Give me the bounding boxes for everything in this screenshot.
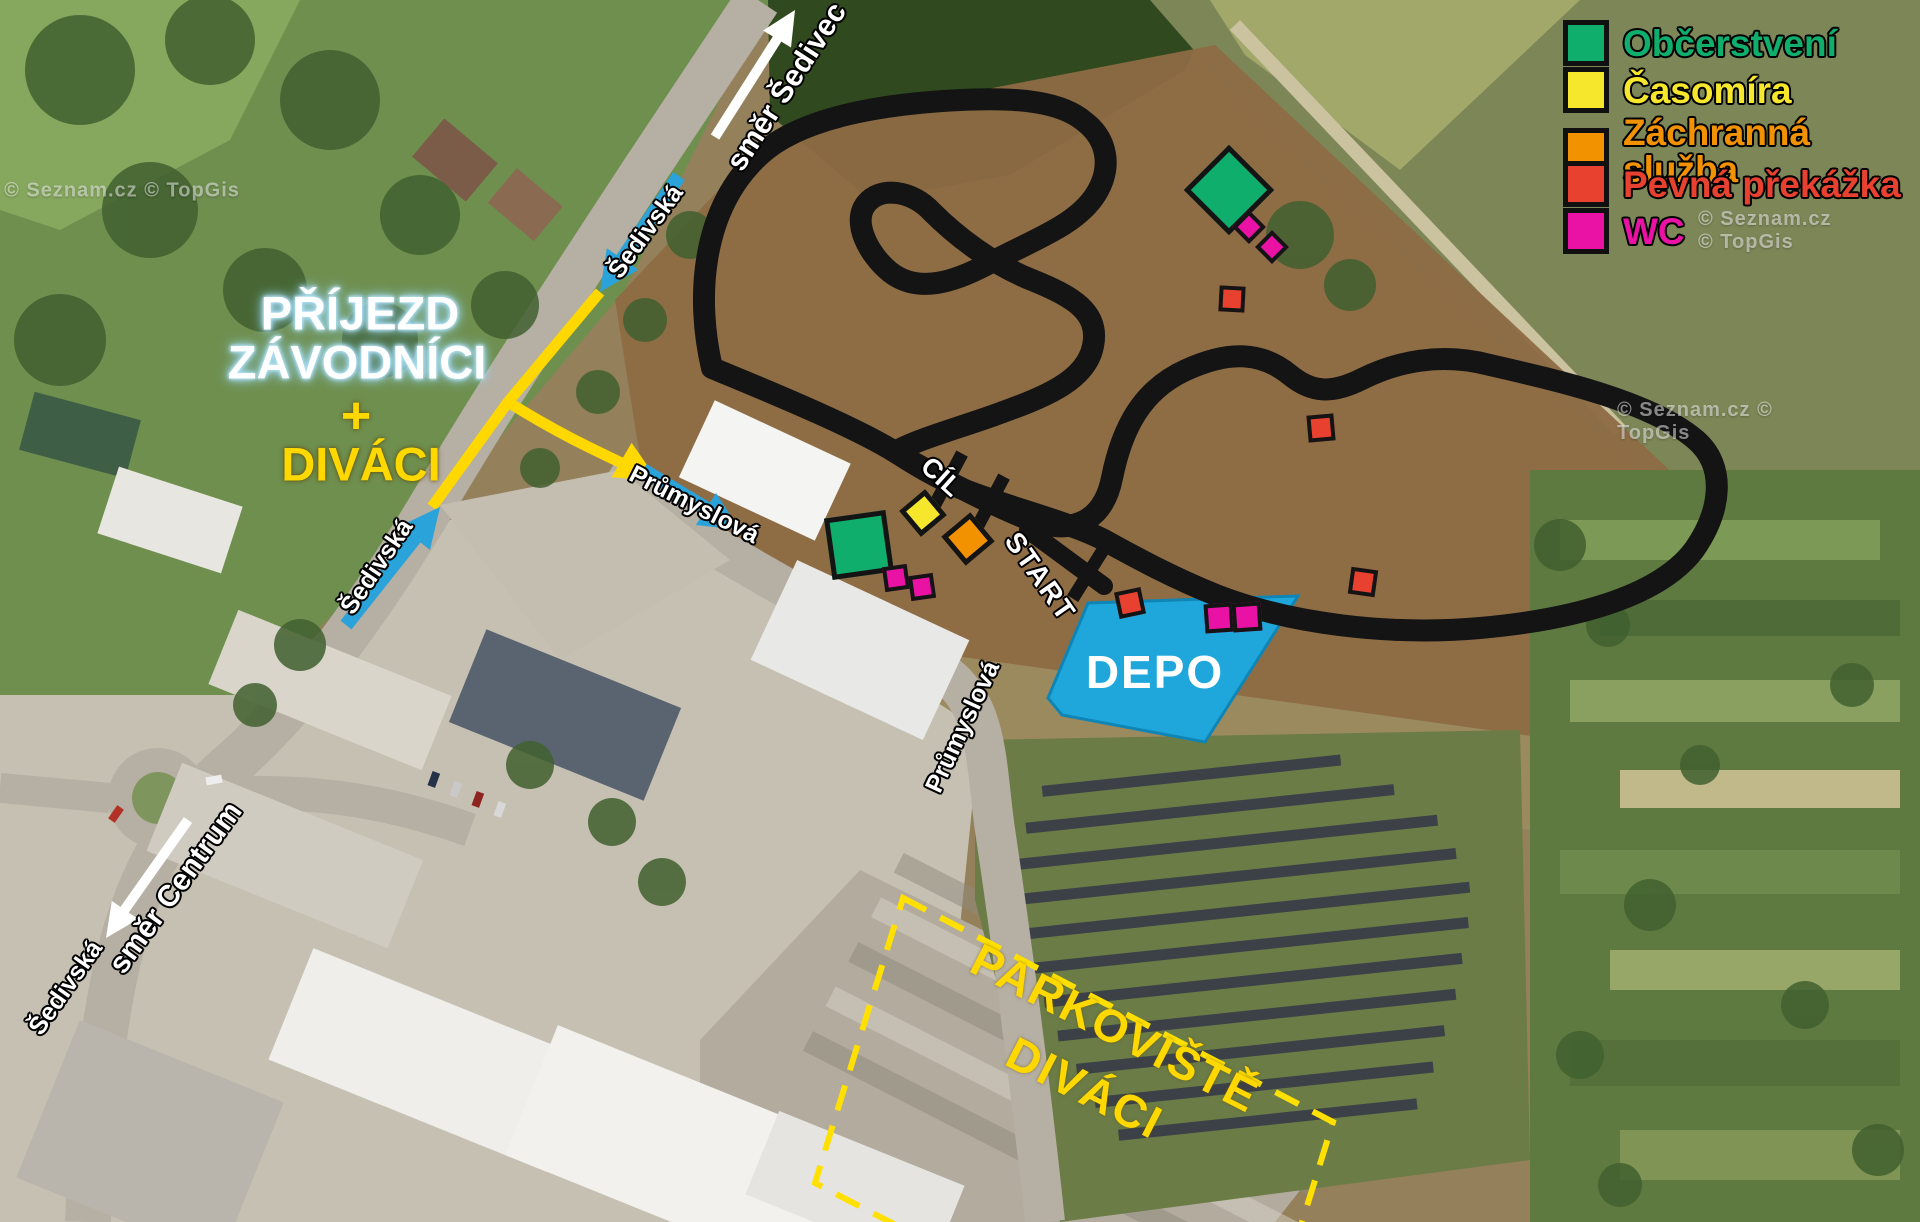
legend-swatch-wc: [1563, 208, 1609, 254]
map-watermark: © Seznam.cz © TopGis: [4, 180, 240, 203]
legend-label-casomira: Časomíra: [1623, 72, 1792, 109]
legend-item-prekazka: Pevná překážka: [1563, 161, 1901, 207]
legend-item-wc: WC: [1563, 208, 1685, 254]
marker-wc: [1232, 602, 1263, 633]
legend-swatch-prekazka: [1563, 161, 1609, 207]
marker-prekazka: [1348, 567, 1378, 597]
arrival-plus: +: [341, 390, 371, 442]
marker-prekazka: [1114, 587, 1146, 619]
legend-swatch-casomira: [1563, 67, 1609, 113]
arrival-line2: ZÁVODNÍCI: [228, 339, 487, 386]
arrival-line3: DIVÁCI: [281, 441, 440, 488]
legend-item-casomira: Časomíra: [1563, 67, 1792, 113]
marker-prekazka: [1218, 285, 1245, 312]
venue-map: PŘÍJEZD ZÁVODNÍCI + DIVÁCI směr Šedivec …: [0, 0, 1920, 1222]
depo-label: DEPO: [1086, 649, 1224, 695]
marker-prekazka: [1306, 413, 1335, 442]
arrival-line1: PŘÍJEZD: [261, 290, 460, 337]
access-route-yellow: [432, 292, 658, 507]
legend-label-obcerstveni: Občerstvení: [1623, 25, 1837, 62]
map-watermark: © Seznam.cz © TopGis: [1698, 208, 1846, 254]
legend-label-prekazka: Pevná překážka: [1623, 166, 1901, 203]
marker-wc: [1204, 603, 1235, 634]
legend-item-obcerstveni: Občerstvení: [1563, 20, 1837, 66]
map-watermark: © Seznam.cz © TopGis: [1617, 399, 1819, 445]
marker-wc: [908, 573, 936, 601]
legend-label-wc: WC: [1623, 213, 1685, 250]
marker-wc: [882, 564, 910, 592]
blue-arrows: [346, 176, 740, 625]
legend-swatch-obcerstveni: [1563, 20, 1609, 66]
